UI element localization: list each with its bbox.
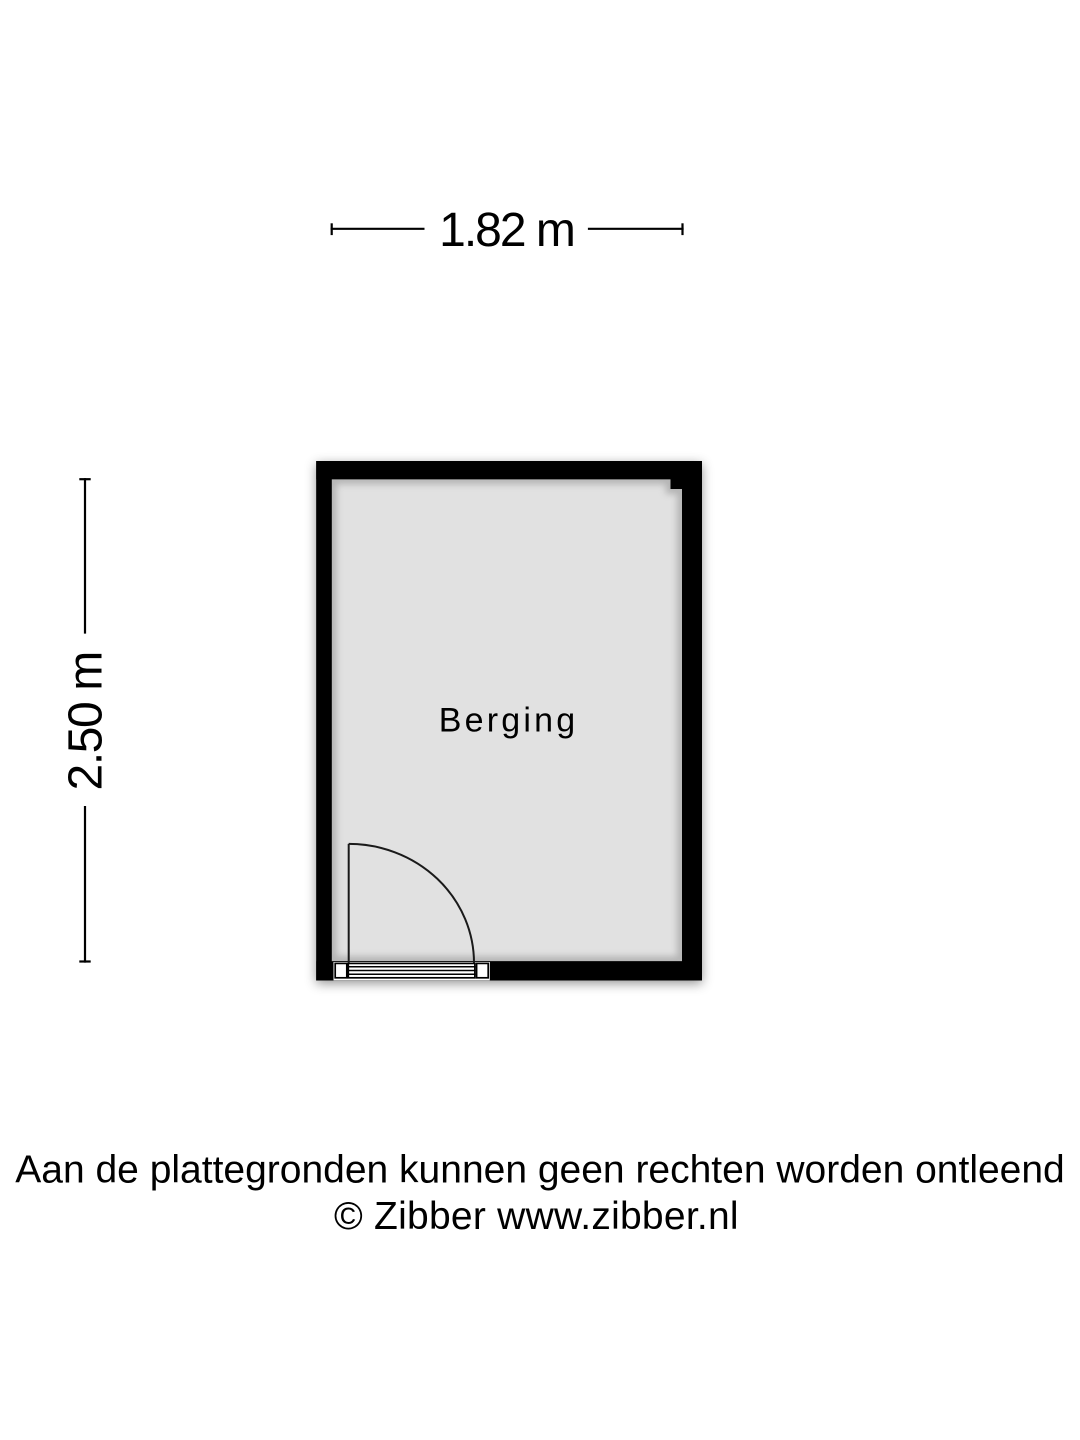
svg-text:© Zibber www.zibber.nl: © Zibber www.zibber.nl — [334, 1195, 739, 1238]
svg-text:Berging: Berging — [439, 702, 579, 740]
svg-text:2.50 m: 2.50 m — [60, 652, 113, 790]
svg-text:1.82 m: 1.82 m — [439, 204, 574, 257]
svg-text:Aan de plattegronden kunnen ge: Aan de plattegronden kunnen geen rechten… — [15, 1149, 1065, 1192]
